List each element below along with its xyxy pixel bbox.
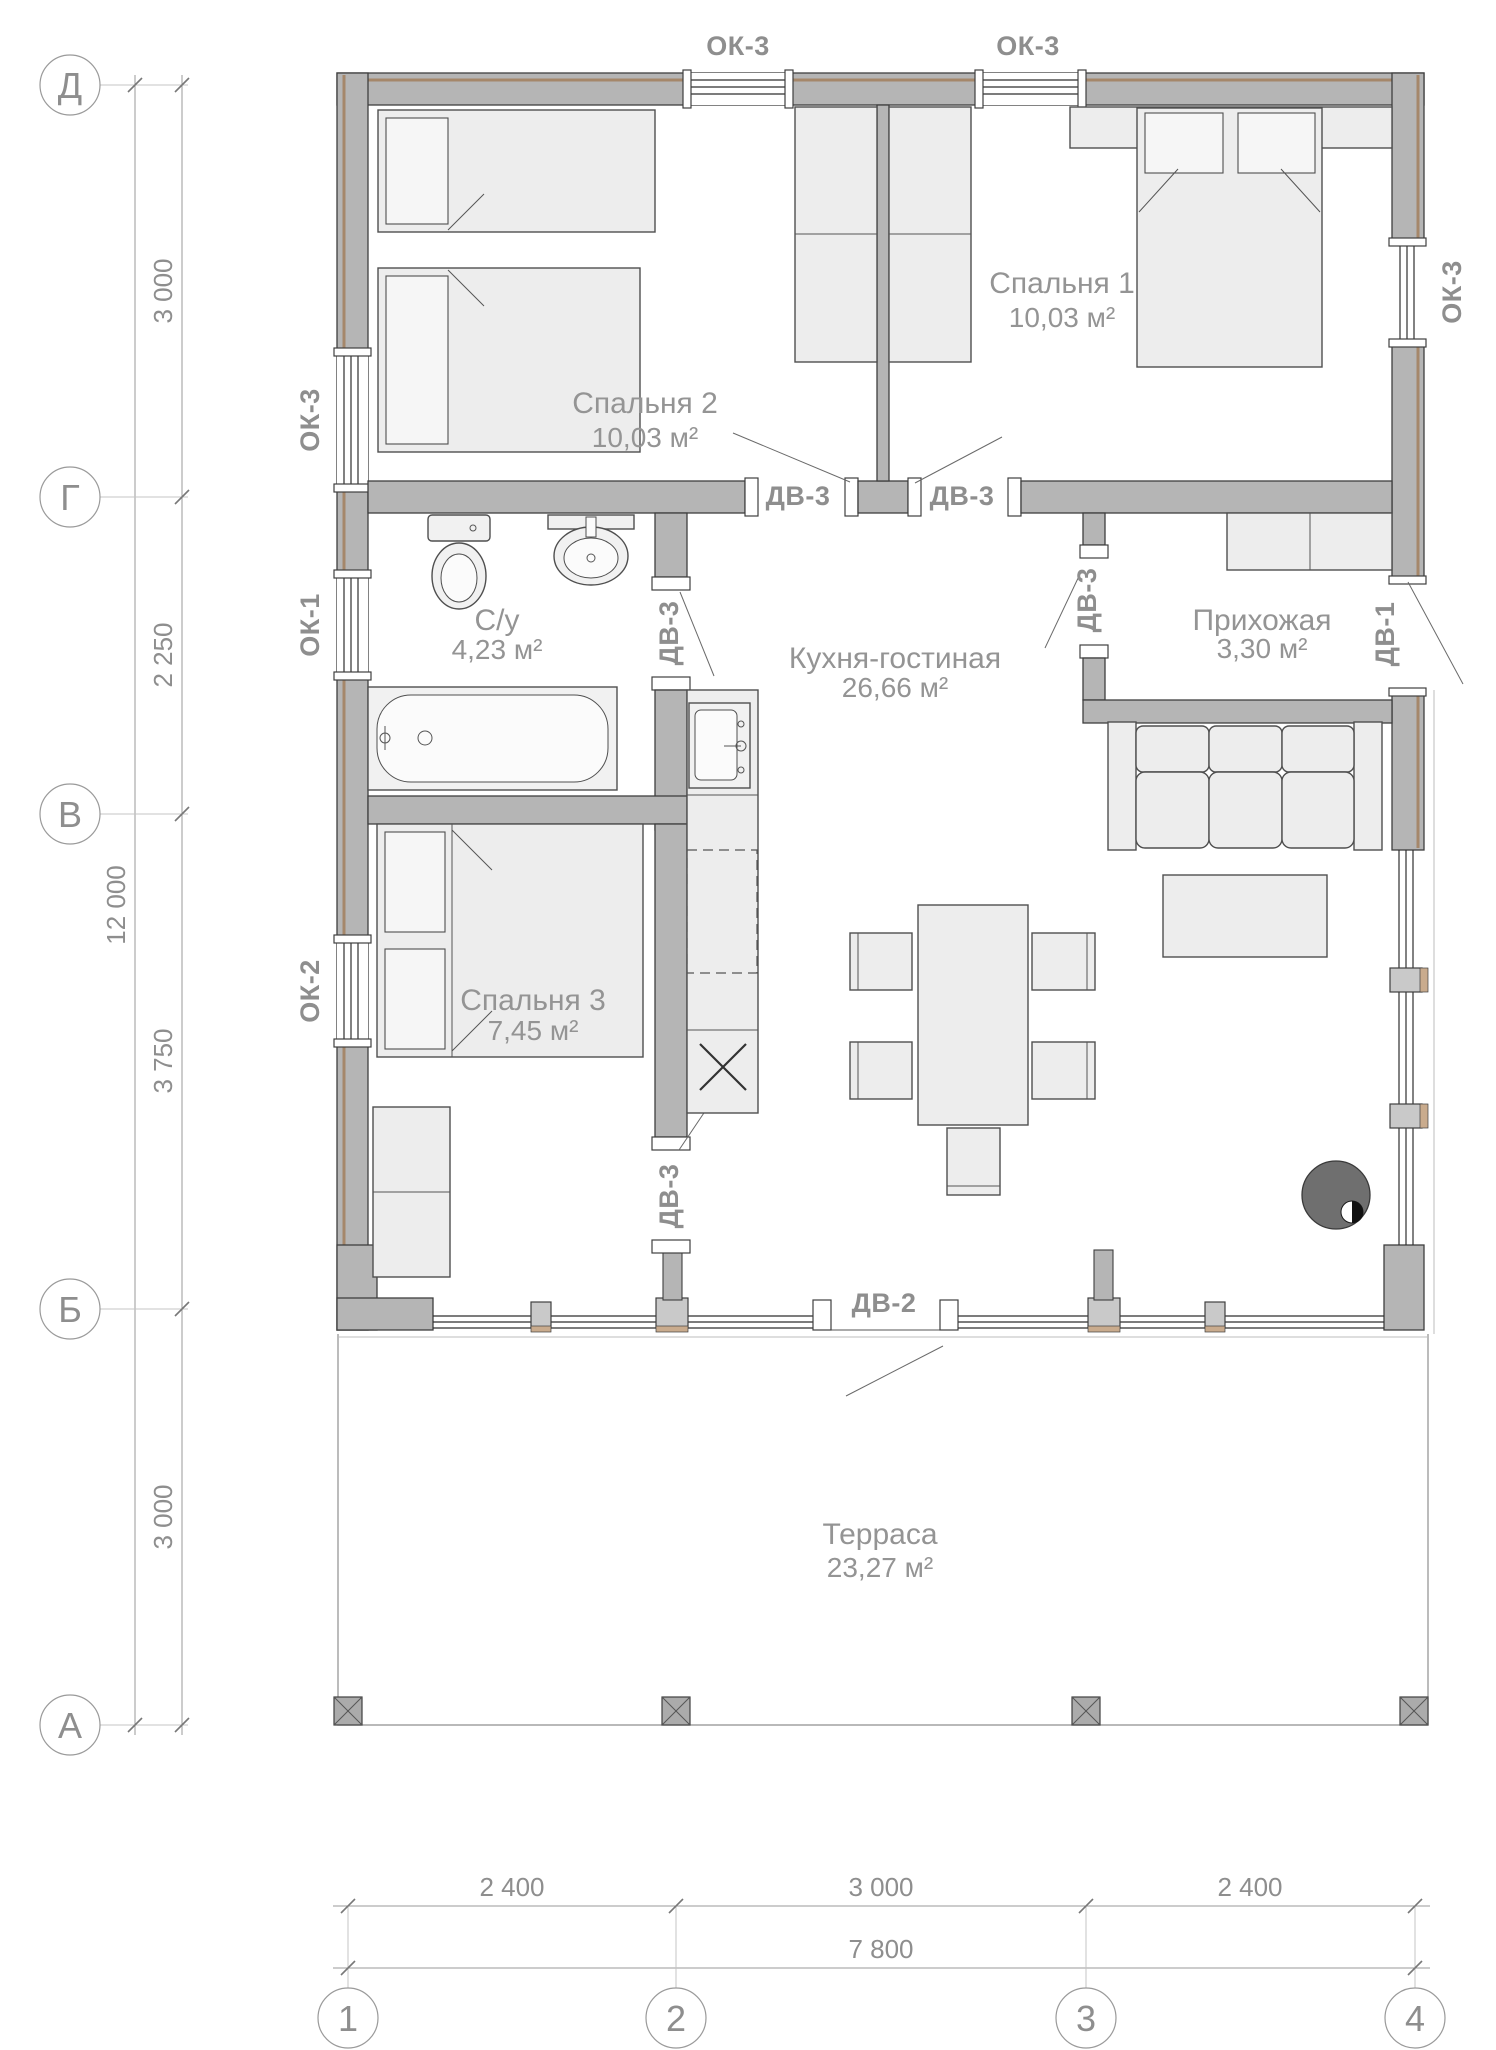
- kitchen-sink: [689, 703, 750, 788]
- wall-hall-west-lower: [1083, 658, 1105, 700]
- room-area-kitchen-living: 26,66 м²: [842, 672, 948, 703]
- room-name-bedroom1: Спальня 1: [989, 267, 1135, 300]
- axis-col-1: 1: [318, 1988, 378, 2048]
- axis-label-d: Д: [58, 65, 82, 106]
- dim-left-3: 3 750: [148, 1028, 178, 1093]
- wall-top: [337, 73, 1424, 105]
- south-post-2: [1088, 1298, 1120, 1328]
- south-post-1-stub: [663, 1250, 682, 1300]
- door-jamb: [1080, 545, 1108, 558]
- window-ok1-left: [334, 570, 371, 680]
- basin-tap: [586, 517, 596, 537]
- south-mullion-1: [531, 1302, 551, 1328]
- mark-ok1-left: ОК-1: [295, 593, 325, 657]
- entry-door-jamb-bottom: [1389, 688, 1426, 696]
- wall-v: [368, 796, 687, 824]
- terrace-door-leader: [846, 1346, 943, 1396]
- double-bed-bedroom1: [1070, 107, 1392, 367]
- axis-col-3: 3: [1056, 1988, 1116, 2048]
- axis-row-b: Б: [40, 1279, 100, 1339]
- mark-dv3-bath: ДВ-3: [654, 601, 684, 666]
- dim-bottom-3: 2 400: [1217, 1872, 1282, 1902]
- sofa-back-cushion: [1136, 726, 1209, 772]
- dim-left-total: 12 000: [101, 865, 131, 945]
- window-ok3-top-2: [975, 70, 1086, 108]
- sofa-armrest-left: [1108, 722, 1136, 850]
- south-post-1-cap: [656, 1326, 688, 1332]
- door-jamb: [1008, 478, 1021, 516]
- window-ok3-right: [1389, 238, 1426, 347]
- sofa: [1108, 722, 1382, 850]
- axis-label-1: 1: [338, 1998, 358, 2039]
- axis-col-4: 4: [1385, 1988, 1445, 2048]
- terrace-post-2: [662, 1697, 690, 1725]
- room-name-kitchen-living: Кухня-гостиная: [789, 642, 1001, 675]
- south-post-1: [656, 1298, 688, 1328]
- axis-row-a: А: [40, 1695, 100, 1755]
- wall-left: [337, 73, 368, 1330]
- dining-set: [850, 905, 1095, 1195]
- dim-bottom-total: 7 800: [848, 1934, 913, 1964]
- axis-row-d: Д: [40, 55, 100, 115]
- window-ok3-left: [334, 348, 371, 492]
- bathtub: [368, 687, 617, 790]
- terrace-door-jamb-right: [940, 1300, 958, 1330]
- wall-bedroom-partition: [877, 105, 889, 481]
- dim-left-1: 3 000: [148, 258, 178, 323]
- wall-g-pier: [858, 481, 908, 513]
- axis-label-4: 4: [1405, 1998, 1425, 2039]
- south-mullion-2-cap: [1205, 1326, 1225, 1332]
- door-jamb: [1080, 645, 1108, 658]
- door-jamb: [845, 478, 858, 516]
- corner-post-left-foot: [337, 1298, 433, 1330]
- sofa-back-cushion: [1282, 726, 1354, 772]
- corner-post-right: [1384, 1245, 1424, 1330]
- south-post-2-cap: [1088, 1326, 1120, 1332]
- wardrobe-bedroom2: [795, 107, 877, 362]
- mark-dv1-entry: ДВ-1: [1370, 602, 1400, 667]
- room-area-bedroom1: 10,03 м²: [1009, 302, 1115, 333]
- pillow: [385, 832, 445, 932]
- toilet-tank: [428, 515, 490, 541]
- east-mullion-1: [1390, 968, 1422, 992]
- sofa-back-cushion: [1209, 726, 1282, 772]
- mark-ok3-left: ОК-3: [295, 388, 325, 452]
- sofa-seat-cushion: [1282, 772, 1354, 848]
- pillow: [1238, 113, 1315, 173]
- chair: [947, 1128, 1000, 1195]
- mark-ok3-right: ОК-3: [1437, 260, 1467, 324]
- dim-left-4: 3 000: [148, 1484, 178, 1549]
- axis-col-2: 2: [646, 1988, 706, 2048]
- terrace-post-4: [1400, 1697, 1428, 1725]
- dimensions-bottom: 2 400 3 000 2 400 7 800: [333, 1872, 1430, 1988]
- room-name-bathroom: С/у: [475, 604, 520, 637]
- bedroom2-door-swing: [733, 433, 850, 482]
- dresser-bedroom3: [373, 1107, 450, 1277]
- door-jamb: [908, 478, 921, 516]
- door-jamb: [652, 1240, 690, 1253]
- entry-door-swing: [1408, 582, 1463, 684]
- wall-bath-east-upper: [655, 513, 687, 577]
- toilet: [428, 515, 490, 609]
- coffee-table: [1163, 875, 1327, 957]
- axis-label-3: 3: [1076, 1998, 1096, 2039]
- chair: [1032, 933, 1095, 990]
- stove: [1302, 1161, 1370, 1229]
- axis-label-a: А: [58, 1705, 82, 1746]
- pillow: [386, 118, 448, 224]
- floor-plan-drawing: Спальня 2 10,03 м² Спальня 1 10,03 м² С/…: [0, 0, 1496, 2050]
- floor-plan-page: Спальня 2 10,03 м² Спальня 1 10,03 м² С/…: [0, 0, 1496, 2050]
- south-post-2-stub: [1094, 1250, 1113, 1300]
- mark-dv2-terrace: ДВ-2: [852, 1288, 917, 1318]
- wash-basin: [548, 515, 634, 585]
- door-jamb: [652, 677, 690, 690]
- window-ok3-top-1: [683, 70, 793, 108]
- pillow: [386, 276, 448, 444]
- room-area-terrace: 23,27 м²: [827, 1552, 933, 1583]
- axis-label-2: 2: [666, 1998, 686, 2039]
- mark-ok3-top-2: ОК-3: [996, 31, 1060, 61]
- mark-ok2-left: ОК-2: [295, 959, 325, 1023]
- single-bed-1: [378, 110, 655, 232]
- sofa-armrest-right: [1354, 722, 1382, 850]
- room-area-bathroom: 4,23 м²: [452, 634, 543, 665]
- axis-row-v: В: [40, 784, 100, 844]
- bedroom1-door-swing: [915, 437, 1002, 483]
- window-ok2-left: [334, 935, 371, 1047]
- wardrobe-hall: [1227, 513, 1392, 570]
- door-jamb: [745, 478, 758, 516]
- wall-bedroom3-east: [655, 824, 687, 1137]
- axis-row-g: Г: [40, 467, 100, 527]
- room-name-bedroom3: Спальня 3: [460, 984, 606, 1017]
- pillow: [1145, 113, 1223, 173]
- wall-g-east: [1021, 481, 1392, 513]
- mark-dv3-bedroom1: ДВ-3: [930, 481, 995, 511]
- dining-table: [918, 905, 1028, 1125]
- room-name-terrace: Терраса: [822, 1518, 937, 1551]
- axis-label-v: В: [58, 794, 82, 835]
- sofa-seat-cushion: [1209, 772, 1282, 848]
- axis-label-g: Г: [60, 477, 80, 518]
- mark-dv3-bedroom3: ДВ-3: [654, 1164, 684, 1229]
- wardrobe-bedroom1: [889, 107, 971, 362]
- south-mullion-1-cap: [531, 1326, 551, 1332]
- wall-hall-west-upper: [1083, 513, 1105, 545]
- door-jamb: [652, 577, 690, 590]
- terrace-door-jamb-left: [813, 1300, 831, 1330]
- east-mullion-1-cap: [1420, 968, 1428, 992]
- terrace-post-1: [334, 1697, 362, 1725]
- door-jamb: [652, 1137, 690, 1150]
- pillow: [385, 949, 445, 1049]
- sofa-seat-cushion: [1136, 772, 1209, 848]
- mark-dv3-bedroom2: ДВ-3: [766, 481, 831, 511]
- mark-dv3-hall: ДВ-3: [1072, 568, 1102, 633]
- terrace-post-3: [1072, 1697, 1100, 1725]
- dimensions-left: 3 000 2 250 3 750 3 000 12 000: [100, 75, 189, 1735]
- mark-ok3-top-1: ОК-3: [706, 31, 770, 61]
- room-area-hall: 3,30 м²: [1217, 633, 1308, 664]
- glazed-wall-south: [433, 1250, 1384, 1396]
- kitchen: [687, 690, 758, 1113]
- east-mullion-2-cap: [1420, 1104, 1428, 1128]
- chair: [1032, 1042, 1095, 1099]
- entry-door-jamb-top: [1389, 576, 1426, 584]
- south-mullion-2: [1205, 1302, 1225, 1328]
- room-area-bedroom2: 10,03 м²: [592, 422, 698, 453]
- chair: [850, 1042, 912, 1099]
- dim-bottom-1: 2 400: [479, 1872, 544, 1902]
- wall-hall-south: [1083, 700, 1392, 723]
- bath-door-swing: [680, 592, 714, 676]
- dim-bottom-2: 3 000: [848, 1872, 913, 1902]
- chair: [850, 933, 912, 990]
- east-mullion-2: [1390, 1104, 1422, 1128]
- room-area-bedroom3: 7,45 м²: [488, 1015, 579, 1046]
- room-name-bedroom2: Спальня 2: [572, 387, 718, 420]
- dim-left-2: 2 250: [148, 622, 178, 687]
- axis-label-b: Б: [58, 1289, 82, 1330]
- wall-g-west: [368, 481, 745, 513]
